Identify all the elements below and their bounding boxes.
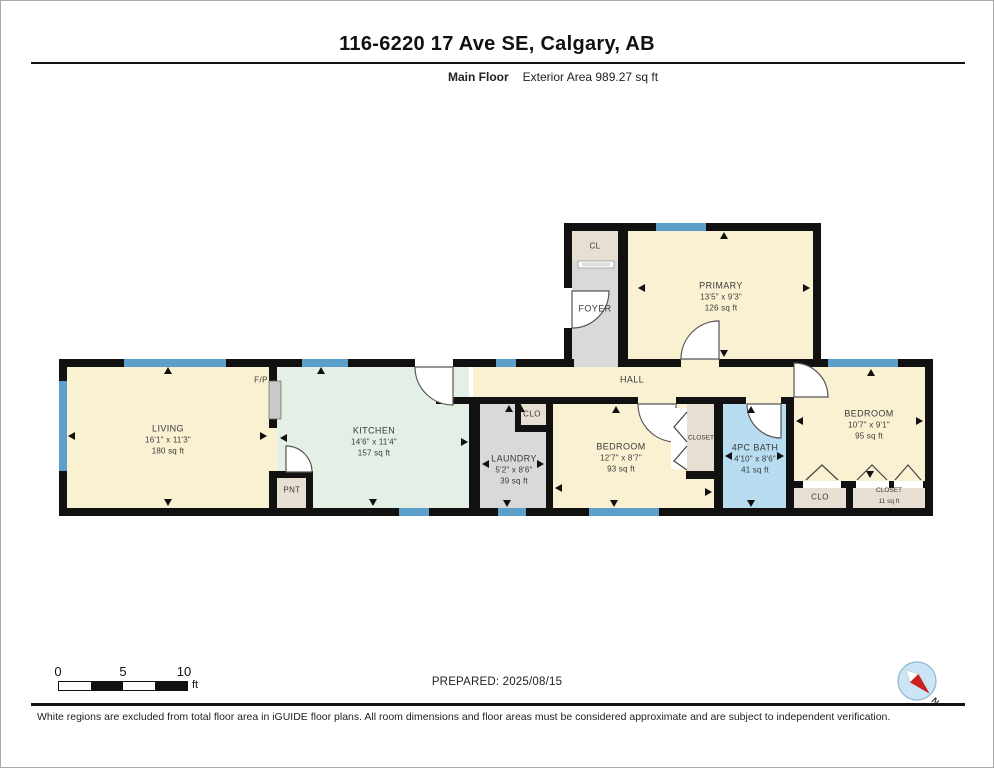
window	[59, 381, 67, 471]
room-label-laundry: LAUNDRY5'2" x 8'6"39 sq ft	[491, 454, 537, 487]
room-label-bedroom-mid: BEDROOM12'7" x 8'7"93 sq ft	[596, 442, 645, 475]
disclaimer-text: White regions are excluded from total fl…	[37, 711, 890, 723]
room-label-pantry: PNT	[283, 485, 300, 496]
fireplace-box	[269, 381, 281, 419]
entry-door-opening	[564, 288, 572, 328]
floor-label: Main Floor	[448, 70, 509, 84]
window	[124, 359, 226, 367]
room-label-kitchen: KITCHEN14'6" x 11'4"157 sq ft	[351, 426, 397, 459]
window	[302, 359, 348, 367]
clo-right-opening	[803, 481, 841, 488]
window	[399, 508, 429, 516]
prepared-date: PREPARED: 2025/08/15	[1, 676, 993, 688]
room-label-hall: HALL	[620, 375, 644, 386]
room-label-living: LIVING16'1" x 11'3"180 sq ft	[145, 424, 191, 457]
room-label-bedroom-right: BEDROOM10'7" x 9'1"95 sq ft	[844, 409, 893, 442]
window	[656, 223, 706, 231]
compass-icon: N	[895, 659, 943, 707]
subtitle: Main Floor Exterior Area 989.27 sq ft	[448, 70, 658, 84]
room-label-bath: 4PC BATH4'10" x 8'6"41 sq ft	[732, 443, 779, 476]
room-label-cl: CL	[589, 241, 600, 252]
cl-bifold-inner	[582, 263, 610, 267]
primary-door-opening	[681, 359, 719, 367]
room-label-closet-right: CLOSET11 sq ft	[876, 485, 902, 507]
kitchen-door-opening	[415, 359, 453, 367]
window	[828, 359, 898, 367]
room-label-foyer: FOYER	[578, 304, 611, 315]
bath-door-opening	[747, 397, 781, 404]
window	[589, 508, 659, 516]
room-label-closet-mid: CLOSET	[688, 433, 714, 444]
floor-plan-page: 116-6220 17 Ave SE, Calgary, AB Main Flo…	[0, 0, 994, 768]
room-label-fireplace: F/P	[254, 375, 268, 386]
room-label-clo-right: CLO	[811, 492, 829, 503]
foyer-hall-opening	[574, 359, 618, 367]
title-divider	[31, 62, 965, 64]
footer-divider	[31, 703, 965, 706]
room-label-clo-hall: CLO	[523, 409, 541, 420]
living-kitchen-opening-floor	[269, 428, 277, 474]
room-label-primary: PRIMARY13'5" x 9'3"126 sq ft	[699, 281, 743, 314]
window	[498, 508, 526, 516]
page-title: 116-6220 17 Ave SE, Calgary, AB	[1, 33, 993, 56]
bedroom-mid-door-opening	[638, 397, 676, 404]
exterior-area-label: Exterior Area 989.27 sq ft	[523, 70, 658, 84]
window	[496, 359, 516, 367]
